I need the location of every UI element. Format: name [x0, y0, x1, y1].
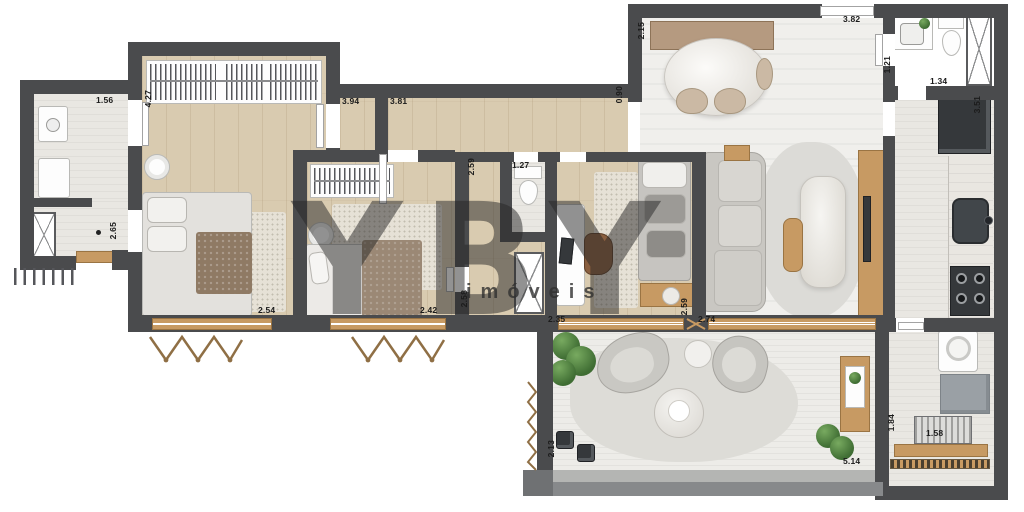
- master-wardrobe-rail: [150, 80, 318, 82]
- dimension-label: 2.42: [420, 305, 437, 315]
- master-bed-pillow: [147, 197, 187, 223]
- dimension-label: 3.94: [342, 96, 359, 106]
- dining-chair: [714, 88, 746, 114]
- bath2-toilet-tank: [938, 17, 964, 29]
- tv-console: [858, 150, 884, 330]
- office-laptop: [559, 237, 575, 264]
- bath1-partition-wall: [34, 198, 92, 207]
- plant-foliage: [550, 360, 576, 386]
- exterior-comb-ticks: [14, 268, 76, 285]
- wall: [875, 486, 1008, 500]
- sofa-cushion: [718, 160, 762, 202]
- door-gap: [455, 267, 469, 292]
- dimension-label: 1.34: [930, 76, 947, 86]
- laundry-bench: [894, 444, 988, 457]
- washer-door: [946, 336, 971, 361]
- stove-burner: [974, 273, 985, 284]
- daybed-bench-cushion: [662, 287, 680, 305]
- wall: [994, 4, 1008, 498]
- daybed-pillow: [642, 162, 687, 188]
- terrace-console-plant: [849, 372, 861, 384]
- coffee-table-marble: [800, 176, 846, 288]
- wall: [874, 4, 1008, 18]
- window-brise-icon: [350, 334, 446, 364]
- dimension-label: 3.51: [972, 96, 982, 113]
- dimension-label: 2.15: [636, 22, 646, 39]
- bedroom2-blanket: [362, 240, 422, 317]
- wall: [293, 150, 455, 162]
- wall: [545, 152, 557, 332]
- dimension-label: 1.21: [882, 56, 892, 73]
- dimension-label: 1.84: [886, 414, 896, 431]
- wall: [628, 4, 822, 18]
- terrace-stool: [556, 431, 574, 449]
- stove: [950, 266, 990, 316]
- dimension-label: 2.35: [548, 314, 565, 324]
- tv: [863, 196, 871, 262]
- hall-closet: [514, 252, 544, 314]
- office-chair: [584, 233, 613, 275]
- laundry-cabinet: [940, 374, 990, 414]
- door-gap: [560, 152, 586, 162]
- bath2-shaft: [966, 12, 992, 86]
- door-leaf: [142, 102, 149, 146]
- wall: [500, 152, 512, 240]
- entry-threshold: [76, 251, 114, 263]
- drying-rack: [890, 459, 990, 469]
- bath2-plant: [919, 18, 930, 29]
- stove-burner: [956, 273, 967, 284]
- door-handle-dot: [96, 230, 101, 235]
- door-gap: [128, 210, 142, 252]
- wall: [692, 152, 706, 332]
- master-wardrobe-hangers: [226, 64, 264, 100]
- door-leaf: [379, 154, 387, 204]
- terrace-plant: [548, 330, 598, 392]
- sofa-chaise-cushion: [714, 250, 762, 306]
- service-shaft: [32, 212, 56, 258]
- daybed-cushion: [646, 230, 686, 258]
- terrace-parapet-outer: [545, 482, 883, 496]
- door-gap: [128, 100, 142, 146]
- wall: [293, 150, 307, 317]
- dimension-label: 1.27: [512, 160, 529, 170]
- master-window: [152, 318, 272, 330]
- terrace-brise-icon: [526, 380, 538, 472]
- bath1-shower-bench: [38, 158, 70, 198]
- dimension-label: 3.82: [843, 14, 860, 24]
- wall: [128, 42, 340, 56]
- window-brise-icon: [148, 334, 244, 364]
- dining-chair: [756, 58, 773, 90]
- master-pouf: [144, 154, 170, 180]
- floor-plan: YBY imóveis 1.564.272.653.943.810.902.15…: [0, 0, 1024, 512]
- daybed-cushion: [644, 194, 686, 224]
- terrace-stool: [577, 444, 595, 462]
- living-sliding-door: [708, 318, 876, 330]
- terrace-side-table: [684, 340, 712, 368]
- door-leaf: [316, 104, 324, 148]
- master-bed-throw: [196, 232, 252, 294]
- wall: [128, 42, 142, 332]
- wall: [375, 92, 388, 154]
- office-sliding-door: [558, 318, 684, 330]
- stove-burner: [956, 293, 967, 304]
- dimension-label: 4.27: [143, 90, 153, 107]
- dimension-label: 1.56: [96, 95, 113, 105]
- coffee-table-wood: [783, 218, 803, 272]
- door-leaf: [898, 322, 924, 330]
- bath2-toilet-bowl: [942, 30, 961, 56]
- fridge: [938, 96, 991, 154]
- master-bed-pillow: [147, 226, 187, 252]
- dimension-label: 2.59: [679, 298, 689, 315]
- terrace-parapet-inner: [553, 470, 875, 482]
- door-leaf: [446, 267, 454, 292]
- wall: [20, 80, 142, 94]
- bath1-sink-basin: [46, 118, 60, 132]
- dimension-label: 5.14: [843, 456, 860, 466]
- dining-chair: [676, 88, 708, 114]
- dimension-label: 1.58: [926, 428, 943, 438]
- door-gap: [898, 86, 926, 100]
- kitchen-faucet: [984, 216, 993, 225]
- dimension-label: 2.13: [546, 440, 556, 457]
- door-gap: [883, 102, 895, 136]
- dimension-label: 2.58: [459, 290, 469, 307]
- stove-burner: [974, 293, 985, 304]
- dimension-label: 2.59: [466, 158, 476, 175]
- door-gap: [326, 104, 340, 148]
- terrace-parapet-corner: [523, 470, 553, 496]
- sofa-tray: [724, 145, 750, 161]
- dimension-label: 2.54: [258, 305, 275, 315]
- dimension-label: 0.90: [614, 86, 624, 103]
- dimension-label: 2.65: [108, 222, 118, 239]
- master-wardrobe-hangers: [270, 64, 318, 100]
- wall: [20, 80, 34, 270]
- sofa-cushion: [718, 205, 762, 247]
- terrace-armchair-seat: [722, 347, 756, 382]
- dimension-label: 3.81: [390, 96, 407, 106]
- bedroom2-window: [330, 318, 446, 330]
- terrace-plate: [668, 400, 690, 422]
- door-gap: [388, 150, 418, 162]
- dimension-label: 2.74: [698, 314, 715, 324]
- master-wardrobe-hangers: [150, 64, 216, 100]
